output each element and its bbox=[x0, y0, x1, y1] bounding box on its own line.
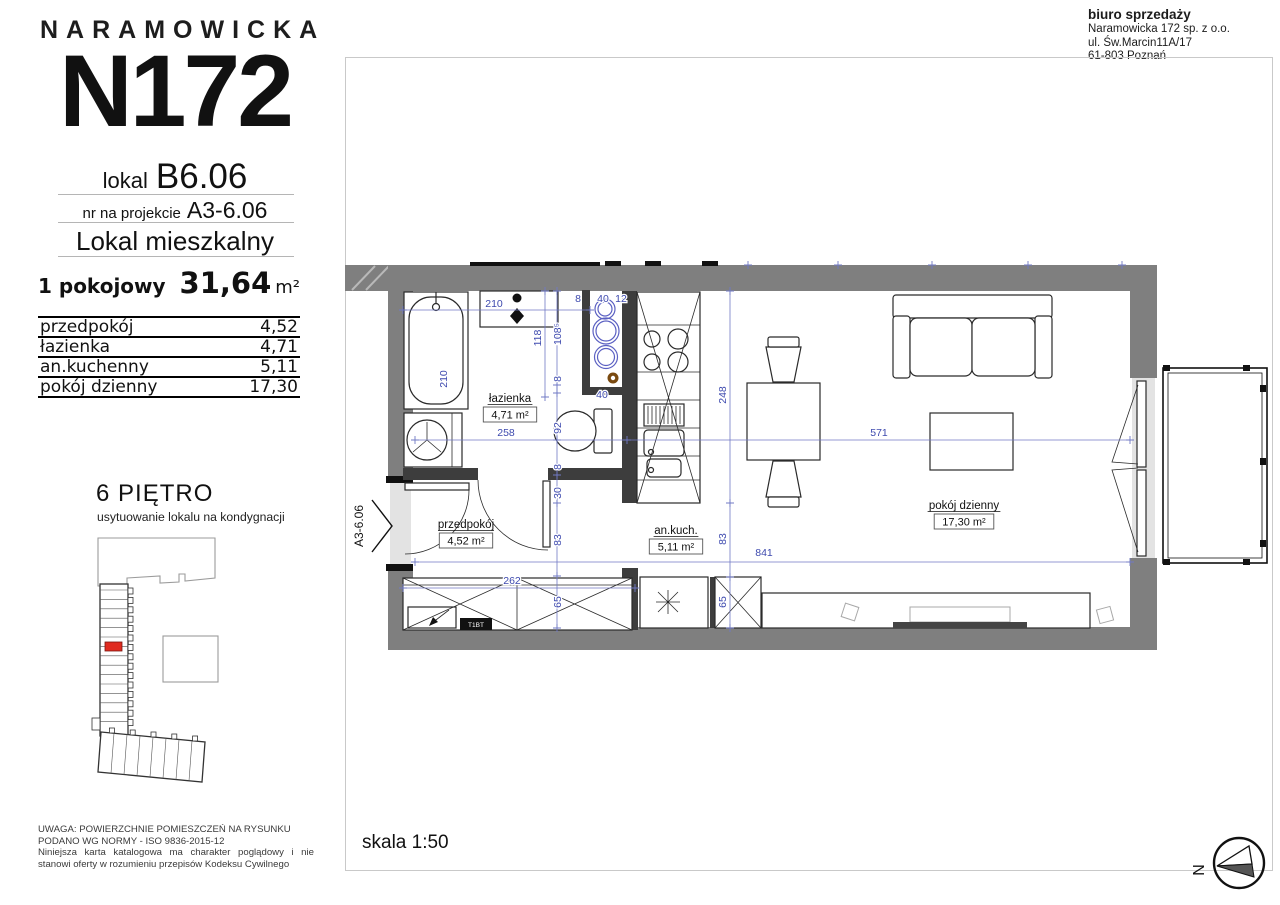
fridge-box bbox=[640, 577, 708, 628]
dimension-label: 40 bbox=[597, 293, 609, 305]
coffee-table bbox=[930, 413, 1013, 470]
unit-reference-arrow: A3-6.06 bbox=[352, 500, 392, 552]
table-row: an.kuchenny5,11 bbox=[38, 356, 300, 376]
dimension-label: 65 bbox=[552, 596, 564, 608]
room-count: 1 pokojowy bbox=[38, 274, 166, 298]
dimension-label: 83 bbox=[717, 533, 729, 545]
floor-title: 6 PIĘTRO bbox=[96, 480, 213, 508]
divider bbox=[58, 194, 294, 195]
bathtub bbox=[404, 292, 468, 409]
dining-table bbox=[747, 337, 820, 507]
sofa bbox=[893, 295, 1052, 378]
railing-posts bbox=[1163, 365, 1266, 565]
minimap-unit-highlight bbox=[105, 642, 122, 651]
dimension-label: 30 bbox=[552, 487, 564, 499]
divider bbox=[58, 222, 294, 223]
room-name: pokój dzienny bbox=[40, 378, 157, 396]
summary-row: 1 pokojowy 31,64m² bbox=[38, 266, 300, 300]
building-wing-vertical bbox=[100, 584, 128, 736]
total-area: 31,64 bbox=[180, 266, 272, 300]
table-row: pokój dzienny17,30 bbox=[38, 376, 300, 396]
lokal-label: lokal bbox=[103, 168, 148, 193]
project-number: A3-6.06 bbox=[187, 197, 268, 223]
dimension-label: 841 bbox=[755, 547, 773, 559]
dimension-label: 118 bbox=[532, 329, 544, 346]
unit-type: Lokal mieszkalny bbox=[30, 226, 320, 257]
dimension-label: 12 bbox=[615, 293, 627, 305]
dimension-label: 248 bbox=[717, 386, 729, 404]
brand-building-name: N172 bbox=[30, 38, 320, 145]
north-arrow-icon: N bbox=[1192, 826, 1277, 901]
room-name: an.kuchenny bbox=[40, 358, 149, 376]
dimension-label: 571 bbox=[870, 427, 888, 439]
kitchen-unit bbox=[637, 292, 700, 503]
dimension-label: 40 bbox=[596, 389, 608, 401]
scale-label: skala 1:50 bbox=[362, 832, 449, 854]
chair-top bbox=[766, 347, 801, 382]
room-area: 5,11 bbox=[260, 358, 298, 376]
disclaimer: UWAGA: POWIERZCHNIE POMIESZCZEŃ NA RYSUN… bbox=[38, 824, 314, 870]
room-labels: łazienka4,71 m²przedpokój4,52 m²an.kuch.… bbox=[438, 393, 1001, 554]
wardrobe-tag: T1BT bbox=[468, 622, 484, 629]
dimension-label: 262 bbox=[503, 575, 521, 587]
washbasin-risers bbox=[593, 299, 619, 384]
disclaimer-note: Niniejsza karta katalogowa ma charakter … bbox=[38, 847, 314, 870]
room-name: przedpokój bbox=[40, 318, 134, 336]
dimension-label: 8 bbox=[552, 376, 564, 382]
room-label: an.kuch. bbox=[654, 525, 697, 537]
chair-bottom bbox=[766, 461, 801, 497]
dimension-label: 210 bbox=[438, 370, 450, 388]
dimension-label: 210 bbox=[485, 298, 503, 310]
dimension-label: 8 bbox=[552, 464, 564, 470]
room-area: 4,71 bbox=[260, 338, 298, 356]
room-label: łazienka bbox=[489, 393, 532, 405]
compass-letter: N bbox=[1192, 864, 1208, 876]
room-area: 4,52 bbox=[260, 318, 298, 336]
rooms-table: przedpokój4,52łazienka4,71an.kuchenny5,1… bbox=[38, 316, 300, 398]
neighbor-building-outline bbox=[98, 538, 215, 586]
sales-office-block: biuro sprzedaży Naramowicka 172 sp. z o.… bbox=[1088, 6, 1273, 64]
room-area: 17,30 bbox=[249, 378, 298, 396]
courtyard-building-outline bbox=[163, 636, 218, 682]
project-number-label: nr na projekcie bbox=[83, 205, 181, 222]
disclaimer-line-1: UWAGA: POWIERZCHNIE POMIESZCZEŃ NA RYSUN… bbox=[38, 824, 314, 836]
room-area-label: 4,52 m² bbox=[447, 536, 485, 548]
dimension-label: 65 bbox=[717, 596, 729, 608]
room-area-label: 4,71 m² bbox=[491, 410, 529, 422]
divider bbox=[58, 256, 294, 257]
unit-reference-label: A3-6.06 bbox=[352, 505, 366, 547]
lokal-number: B6.06 bbox=[156, 157, 247, 196]
unit-number-row: lokalB6.06 bbox=[30, 157, 320, 197]
room-label: pokój dzienny bbox=[929, 500, 1000, 512]
room-name: łazienka bbox=[40, 338, 110, 356]
project-number-row: nr na projekcieA3-6.06 bbox=[30, 197, 320, 224]
entrance-stub bbox=[92, 718, 100, 730]
building-location-map bbox=[85, 532, 260, 788]
floor-plan: T1BT bbox=[345, 57, 1273, 871]
table-row: przedpokój4,52 bbox=[38, 316, 300, 336]
floor-subtitle: usytuowanie lokalu na kondygnacji bbox=[97, 510, 285, 524]
sales-office-street: ul. Św.Marcin11A/17 bbox=[1088, 37, 1273, 51]
disclaimer-line-2: PODANO WG NORMY - ISO 9836-2015-12 bbox=[38, 836, 314, 848]
chevron-right-icon bbox=[372, 500, 392, 552]
tv-sideboard bbox=[762, 593, 1114, 628]
room-area-label: 5,11 m² bbox=[658, 542, 695, 554]
dimension-label: 83 bbox=[552, 534, 564, 546]
table-row: łazienka4,71 bbox=[38, 336, 300, 356]
sales-office-title: biuro sprzedaży bbox=[1088, 6, 1273, 23]
speaker-right bbox=[1096, 606, 1113, 623]
sales-office-company: Naramowicka 172 sp. z o.o. bbox=[1088, 23, 1273, 37]
room-area-label: 17,30 m² bbox=[942, 517, 986, 529]
dimension-label: 258 bbox=[497, 427, 515, 439]
dimension-label: 8 bbox=[575, 293, 581, 305]
balcony bbox=[1163, 365, 1267, 565]
dimension-label: 92 bbox=[552, 422, 564, 434]
room-label: przedpokój bbox=[438, 519, 494, 531]
dimension-label: 108⁵ bbox=[552, 323, 564, 345]
area-unit: m² bbox=[275, 277, 300, 298]
